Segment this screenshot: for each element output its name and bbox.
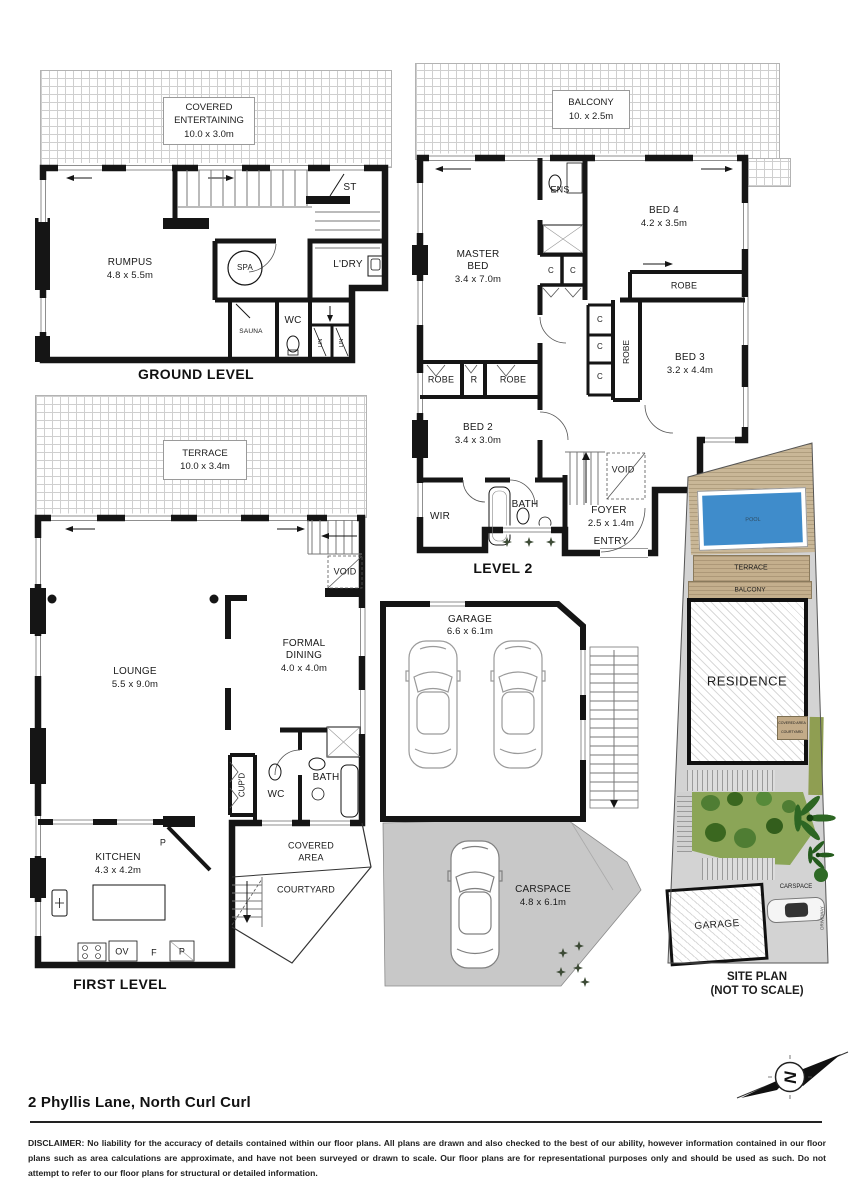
- disclaimer-body: No liability for the accuracy of details…: [28, 1138, 826, 1178]
- external-stairs: [590, 647, 638, 808]
- bed4-label: BED 4: [649, 205, 679, 218]
- ground-covered-entertaining-label: COVERED ENTERTAINING 10.0 x 3.0m: [163, 97, 255, 145]
- pantry-label: P: [160, 837, 166, 848]
- robe-right-label: ROBE: [500, 374, 526, 385]
- garage-label: GARAGE: [448, 614, 492, 627]
- palm-tree-large: [794, 794, 835, 842]
- entry-label: ENTRY: [594, 536, 629, 549]
- rumpus-label: RUMPUS: [108, 257, 153, 270]
- robe-vertical-label: ROBE: [621, 340, 631, 364]
- terrace-label: TERRACE 10.0 x 3.4m: [163, 440, 247, 480]
- foyer-dims: 2.5 x 1.4m: [588, 518, 634, 530]
- bed3-label: BED 3: [675, 352, 705, 365]
- bed4-dims: 4.2 x 3.5m: [641, 218, 687, 230]
- master-bed-label-1: MASTER: [457, 249, 500, 262]
- site-plan-title-1: SITE PLAN: [727, 971, 787, 983]
- palm-tree-small: [808, 840, 834, 871]
- north-compass: N: [733, 1046, 852, 1110]
- bed3-dims: 3.2 x 4.4m: [667, 365, 713, 377]
- closet-label-1: C: [548, 266, 554, 276]
- ground-wc-label: WC: [284, 315, 301, 328]
- disclaimer-lead: DISCLAIMER:: [28, 1138, 84, 1148]
- dining-label-2: DINING: [286, 650, 322, 663]
- master-bed-label-2: BED: [467, 261, 488, 274]
- kitchen-dims: 4.3 x 4.2m: [95, 865, 141, 877]
- cupboard-label: CUP'D: [238, 773, 247, 797]
- covered-area-label-2: AREA: [298, 852, 323, 863]
- carspace-label: CARSPACE: [515, 884, 571, 897]
- closet-label-2: C: [570, 266, 576, 276]
- closet-label-3: C: [597, 315, 603, 325]
- first-level-plan-drawing: [25, 390, 375, 1000]
- storage-label: ST: [343, 182, 356, 195]
- ground-level-title: GROUND LEVEL: [138, 366, 254, 382]
- master-bed-dims: 3.4 x 7.0m: [455, 274, 501, 286]
- bed2-dims: 3.4 x 3.0m: [455, 435, 501, 447]
- first-bath-label: BATH: [313, 772, 340, 785]
- compass-north-letter: N: [781, 1071, 800, 1084]
- lounge-dims: 5.5 x 9.0m: [112, 679, 158, 691]
- site-overlay: [655, 440, 852, 1000]
- divider-rule: [30, 1121, 822, 1123]
- floorplan-page: COVERED ENTERTAINING 10.0 x 3.0m RUMPUS …: [0, 0, 852, 1200]
- rumpus-dims: 4.8 x 5.5m: [107, 270, 153, 282]
- dining-label-1: FORMAL: [283, 638, 326, 651]
- foyer-label: FOYER: [591, 505, 626, 518]
- level2-title: LEVEL 2: [473, 560, 532, 576]
- bed4-robe-label: ROBE: [671, 280, 697, 291]
- site-plan-title-2: (NOT TO SCALE): [710, 985, 803, 997]
- dining-dims: 4.0 x 4.0m: [281, 663, 327, 675]
- courtyard-label: COURTYARD: [277, 884, 335, 895]
- property-address: 2 Phyllis Lane, North Curl Curl: [28, 1094, 251, 1111]
- fridge-label: F: [151, 947, 157, 958]
- garage-dims: 6.6 x 6.1m: [447, 626, 493, 638]
- level2-bath-label: BATH: [512, 499, 539, 512]
- wir-label: WIR: [430, 511, 450, 524]
- carspace-dims: 4.8 x 6.1m: [520, 897, 566, 909]
- laundry-label: L'DRY: [333, 259, 362, 272]
- kitchen-label: KITCHEN: [95, 852, 140, 865]
- covered-area-label-1: COVERED: [288, 840, 334, 851]
- closet-label-5: C: [597, 372, 603, 382]
- first-wc-label: WC: [267, 789, 284, 802]
- robe-left-label: ROBE: [428, 374, 454, 385]
- first-void-label: VOID: [334, 566, 357, 577]
- bush: [814, 868, 828, 882]
- ensuite-label: ENS: [550, 184, 569, 195]
- balcony-label: BALCONY 10. x 2.5m: [552, 90, 630, 129]
- level2-void-label: VOID: [612, 464, 635, 475]
- closet-label-4: C: [597, 342, 603, 352]
- lounge-label: LOUNGE: [113, 666, 156, 679]
- carspace-car: [448, 841, 502, 968]
- robe-r-label: R: [471, 374, 478, 385]
- pantry2-label: P: [179, 946, 185, 957]
- bed2-label: BED 2: [463, 422, 493, 435]
- site-plan: POOL TERRACE BALCONY RESIDENCE COVERED A…: [655, 440, 852, 1000]
- spa-label: SPA: [237, 263, 253, 273]
- first-level-title: FIRST LEVEL: [73, 976, 167, 992]
- linen-label-2: LIN: [339, 339, 345, 348]
- disclaimer-text: DISCLAIMER: No liability for the accurac…: [28, 1136, 826, 1181]
- garage-plan-drawing: [375, 590, 650, 995]
- oven-label: OV: [115, 946, 128, 957]
- sauna-label: SAUNA: [239, 328, 262, 336]
- linen-label: LIN: [318, 339, 324, 348]
